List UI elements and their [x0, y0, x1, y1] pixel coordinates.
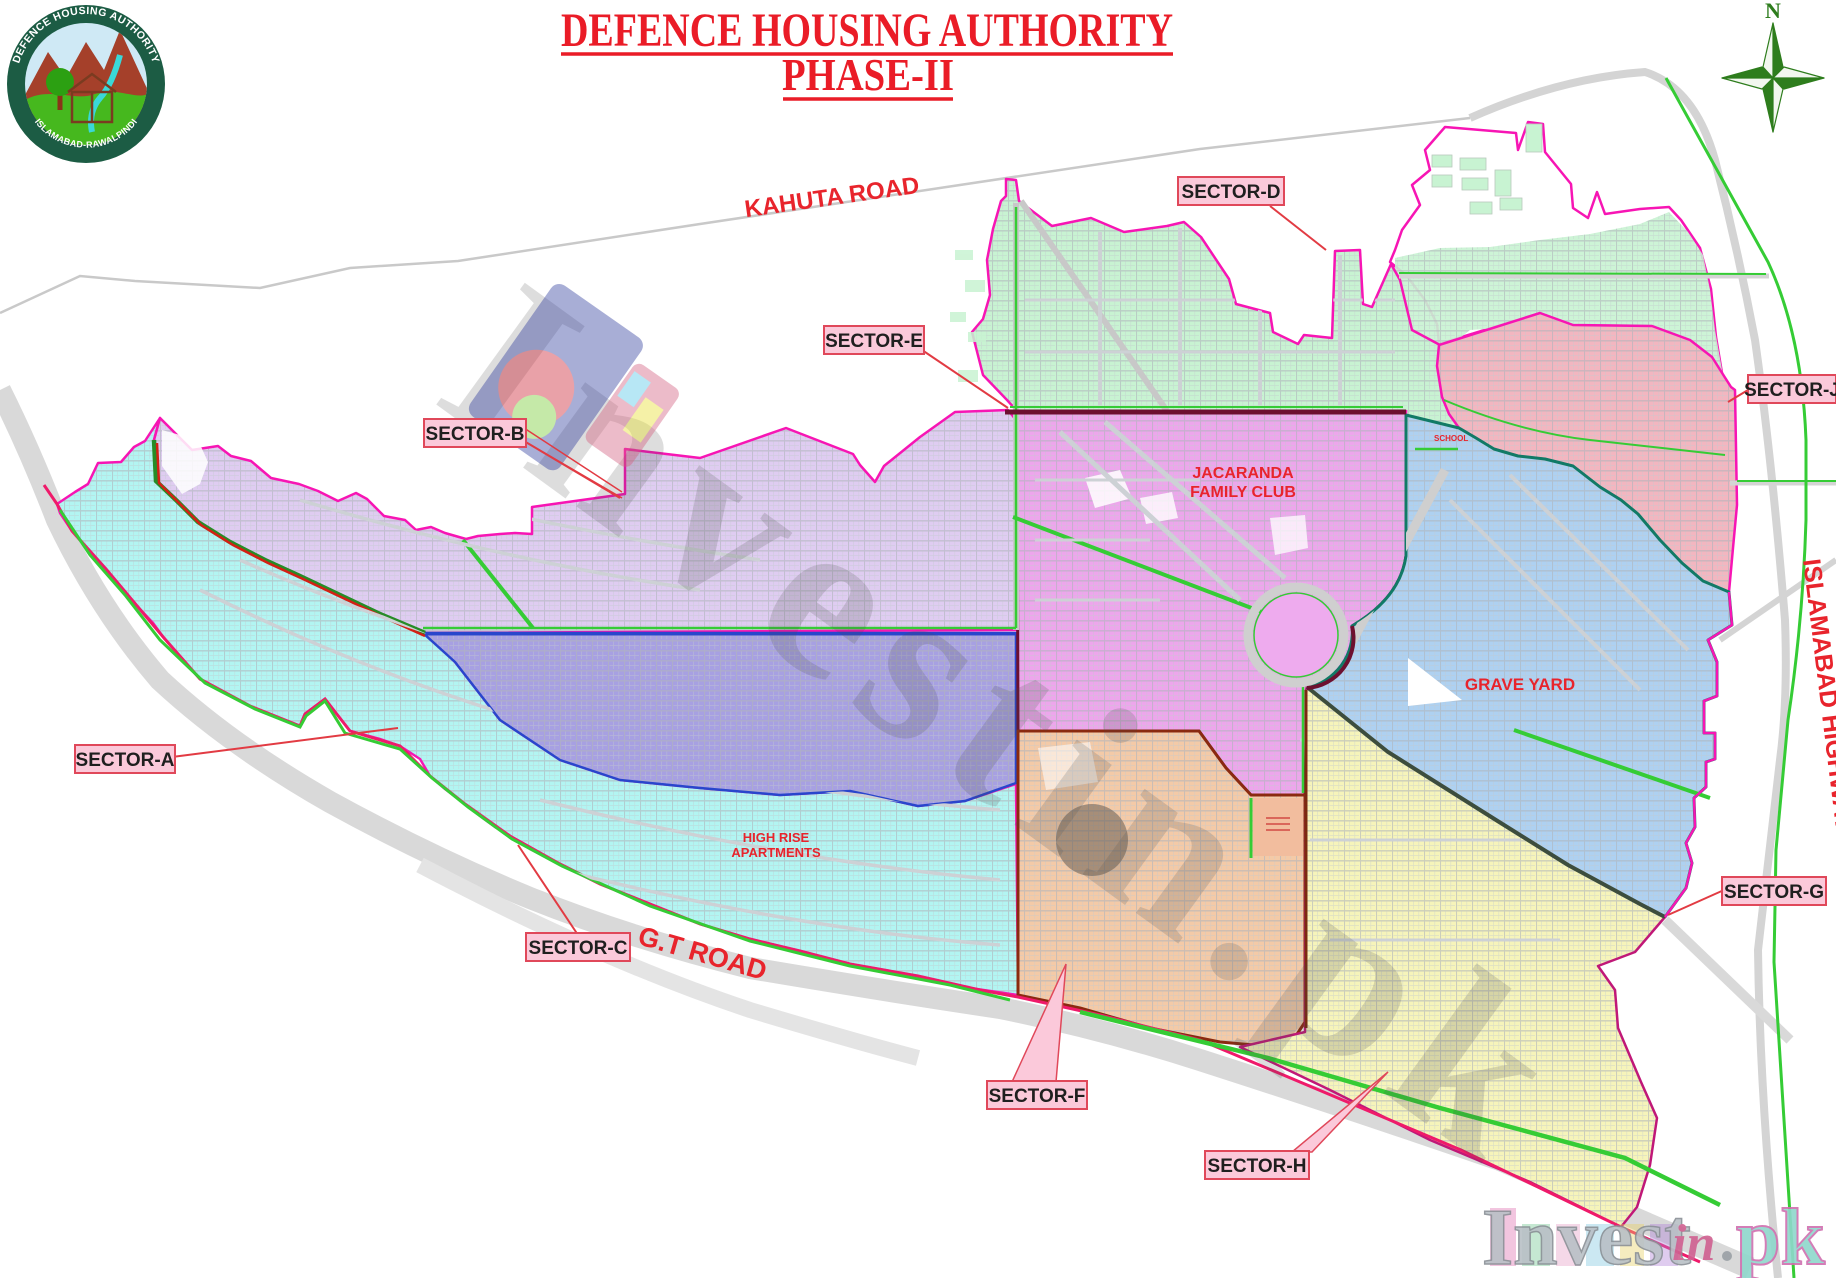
svg-text:SECTOR-A: SECTOR-A — [76, 750, 175, 771]
svg-text:GRAVE YARD: GRAVE YARD — [1465, 675, 1575, 694]
svg-text:Invest: Invest — [1482, 1194, 1691, 1278]
svg-text:SECTOR-F: SECTOR-F — [989, 1086, 1086, 1107]
svg-text:pk: pk — [1736, 1194, 1825, 1278]
svg-text:SECTOR-C: SECTOR-C — [529, 938, 628, 959]
svg-text:N: N — [1765, 0, 1781, 23]
svg-text:in: in — [1672, 1215, 1715, 1272]
svg-text:SECTOR-D: SECTOR-D — [1182, 182, 1281, 203]
svg-text:APARTMENTS: APARTMENTS — [731, 845, 821, 860]
svg-text:JACARANDA: JACARANDA — [1192, 465, 1294, 482]
svg-text:SECTOR-G: SECTOR-G — [1724, 882, 1824, 903]
svg-text:SECTOR-E: SECTOR-E — [825, 331, 923, 352]
svg-text:SECTOR-J: SECTOR-J — [1744, 380, 1836, 401]
svg-text:SECTOR-H: SECTOR-H — [1208, 1156, 1307, 1177]
svg-text:SCHOOL: SCHOOL — [1434, 434, 1468, 443]
svg-text:FAMILY CLUB: FAMILY CLUB — [1190, 484, 1296, 501]
svg-text:SECTOR-B: SECTOR-B — [426, 424, 525, 445]
svg-text:HIGH RISE: HIGH RISE — [743, 830, 810, 845]
svg-text:PHASE-II: PHASE-II — [782, 49, 954, 100]
